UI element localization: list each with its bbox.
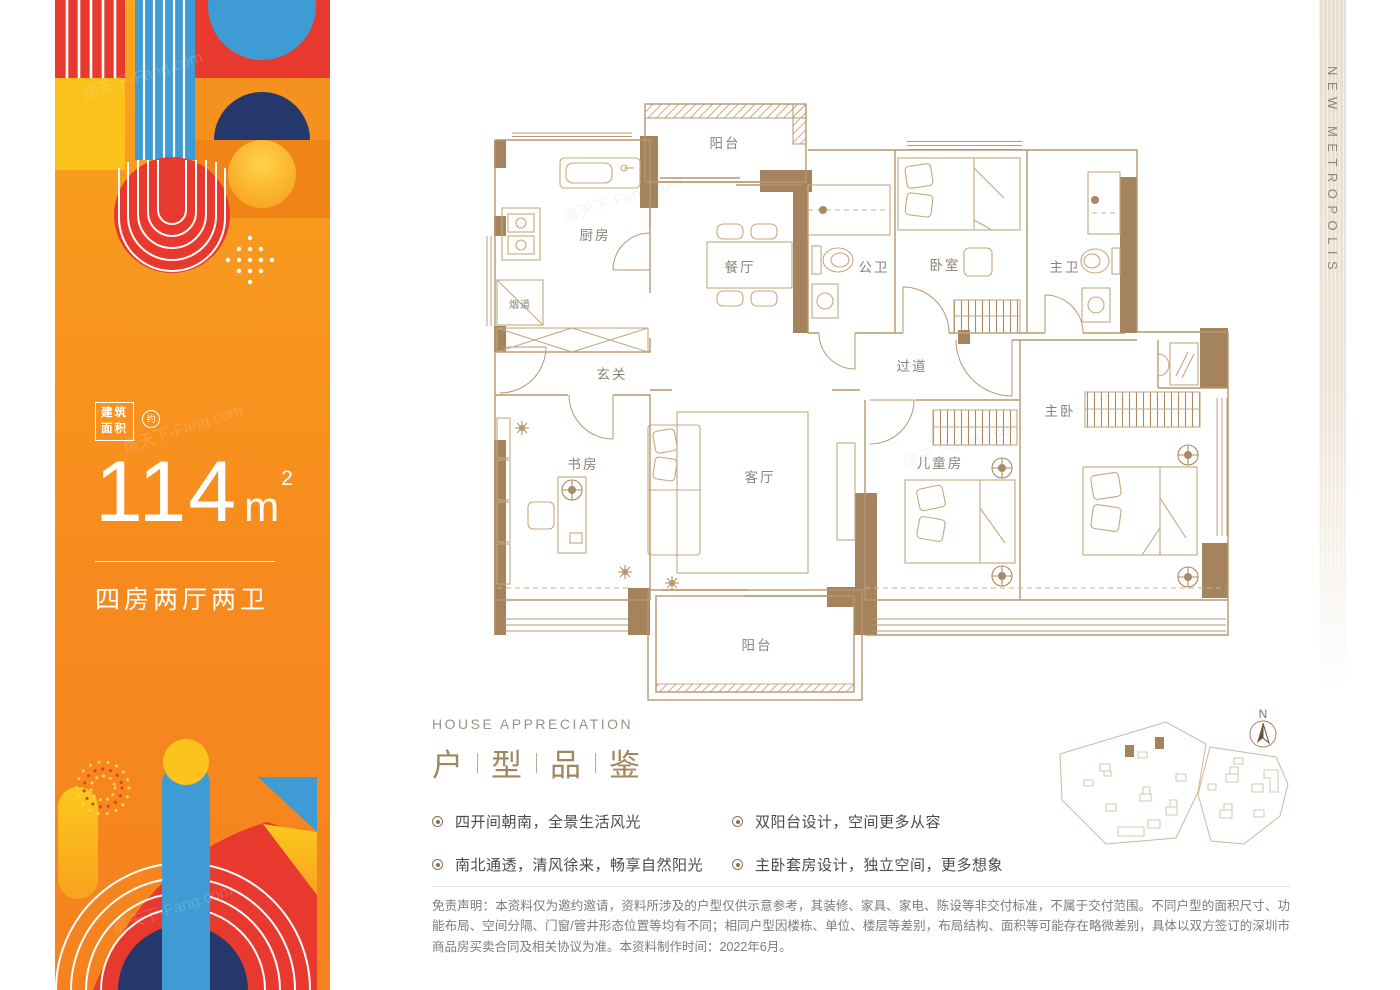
area-label-line1: 建筑 — [101, 406, 128, 422]
disclaimer-text: 免责声明：本资料仅为邀约邀请，资料所涉及的户型仅供示意参考，其装修、家具、家电、… — [432, 886, 1290, 957]
side-ribbon: NEW METROPOLIS — [1319, 0, 1346, 690]
feature-list: 四开间朝南，全景生活风光 双阳台设计，空间更多从容 南北通透，清风徐来，畅享自然… — [432, 811, 1292, 875]
floor-plan: 阳台 厨房 烟道 餐厅 公卫 卧室 主卫 玄关 过道 书房 客厅 儿童房 主卧 … — [482, 88, 1242, 723]
feature-text: 主卧套房设计，独立空间，更多想象 — [755, 854, 1003, 875]
area-divider — [95, 561, 275, 562]
bullet-icon — [432, 816, 443, 827]
title-separator — [536, 753, 537, 773]
room-label-master-bedroom: 主卧 — [1045, 404, 1076, 419]
layout-text: 四房两厅两卫 — [95, 580, 295, 616]
room-label-foyer: 玄关 — [597, 366, 628, 382]
bullet-icon — [732, 859, 743, 870]
bullet-icon — [732, 816, 743, 827]
room-label-kids: 儿童房 — [917, 455, 964, 471]
area-unit: m — [244, 483, 279, 530]
feature-item: 主卧套房设计，独立空间，更多想象 — [732, 854, 1292, 875]
title-separator — [595, 753, 596, 773]
feature-item: 双阳台设计，空间更多从容 — [732, 811, 1292, 832]
room-label-kitchen: 厨房 — [580, 228, 611, 243]
room-label-balcony-top: 阳台 — [710, 136, 741, 151]
section-title: 户 型 品 鉴 — [432, 740, 1292, 785]
area-label-line2: 面积 — [101, 422, 128, 438]
dot-diamond — [226, 236, 274, 284]
room-label-bedroom: 卧室 — [930, 257, 961, 273]
info-section: HOUSE APPRECIATION 户 型 品 鉴 四开间朝南，全景生活风光 … — [432, 716, 1292, 875]
area-value: 114m2 — [95, 449, 295, 535]
title-char: 鉴 — [609, 740, 641, 785]
feature-item: 四开间朝南，全景生活风光 — [432, 811, 710, 832]
room-label-living: 客厅 — [745, 469, 776, 485]
room-label-balcony-bottom: 阳台 — [742, 638, 773, 653]
area-label-box: 建筑 面积 — [95, 402, 134, 441]
title-separator — [477, 753, 478, 773]
feature-text: 南北通透，清风徐来，畅享自然阳光 — [455, 854, 703, 875]
title-char: 品 — [550, 740, 582, 785]
feature-text: 双阳台设计，空间更多从容 — [755, 811, 941, 832]
room-label-public-bath: 公卫 — [859, 260, 890, 275]
title-char: 户 — [432, 740, 464, 785]
title-char: 型 — [491, 740, 523, 785]
feature-item: 南北通透，清风徐来，畅享自然阳光 — [432, 854, 710, 875]
feature-text: 四开间朝南，全景生活风光 — [455, 811, 641, 832]
banner-top-decoration — [55, 0, 330, 335]
area-number: 114 — [95, 444, 238, 540]
balcony-hatch — [645, 104, 854, 692]
bullet-icon — [432, 859, 443, 870]
ribbon-text: NEW METROPOLIS — [1325, 66, 1340, 276]
room-label-study: 书房 — [568, 457, 599, 472]
section-eyebrow: HOUSE APPRECIATION — [432, 716, 1292, 732]
structural-walls — [494, 136, 1228, 635]
area-approx-badge: 约 — [142, 410, 160, 428]
area-superscript: 2 — [281, 467, 293, 490]
left-banner: 建筑 面积 约 114m2 四房两厅两卫 — [55, 0, 330, 990]
banner-bottom-decoration — [55, 680, 330, 990]
room-label-master-bath: 主卫 — [1050, 260, 1081, 275]
room-label-flue: 烟道 — [509, 298, 531, 311]
area-block: 建筑 面积 约 114m2 四房两厅两卫 — [95, 402, 295, 616]
room-label-corridor: 过道 — [897, 359, 928, 374]
room-label-dining: 餐厅 — [725, 260, 756, 275]
